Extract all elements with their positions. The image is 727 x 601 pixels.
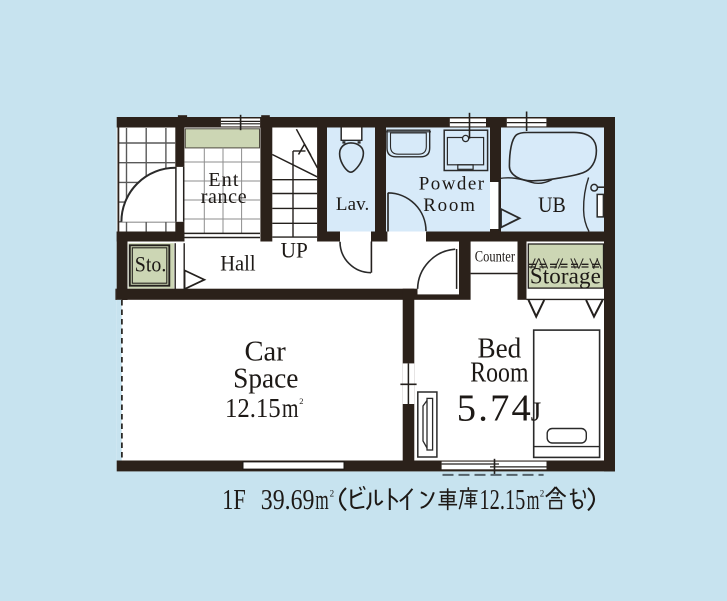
svg-text:Room: Room (423, 195, 476, 216)
svg-text:Space: Space (233, 363, 298, 395)
svg-text:12.15: 12.15 (480, 485, 526, 516)
svg-text:J: J (531, 396, 542, 426)
svg-text:2: 2 (330, 489, 335, 499)
svg-text:5.74: 5.74 (457, 387, 533, 429)
svg-text:Counter: Counter (475, 248, 515, 266)
svg-text:Sto.: Sto. (135, 252, 167, 277)
svg-text:1F: 1F (222, 483, 245, 516)
svg-text:Powder: Powder (419, 174, 486, 195)
svg-text:m: m (315, 485, 329, 517)
svg-text:2: 2 (299, 396, 303, 406)
svg-text:rance: rance (201, 186, 248, 208)
svg-text:UP: UP (281, 238, 308, 263)
svg-text:m: m (527, 485, 540, 517)
svg-text:12.15: 12.15 (225, 393, 281, 423)
svg-text:2: 2 (540, 489, 545, 499)
svg-text:m: m (282, 394, 299, 424)
svg-text:39.69: 39.69 (261, 483, 315, 516)
svg-text:Storage: Storage (530, 263, 601, 288)
svg-text:Room: Room (470, 357, 528, 388)
svg-text:Lav.: Lav. (336, 194, 370, 215)
svg-text:UB: UB (538, 192, 566, 217)
svg-text:Hall: Hall (220, 251, 255, 276)
